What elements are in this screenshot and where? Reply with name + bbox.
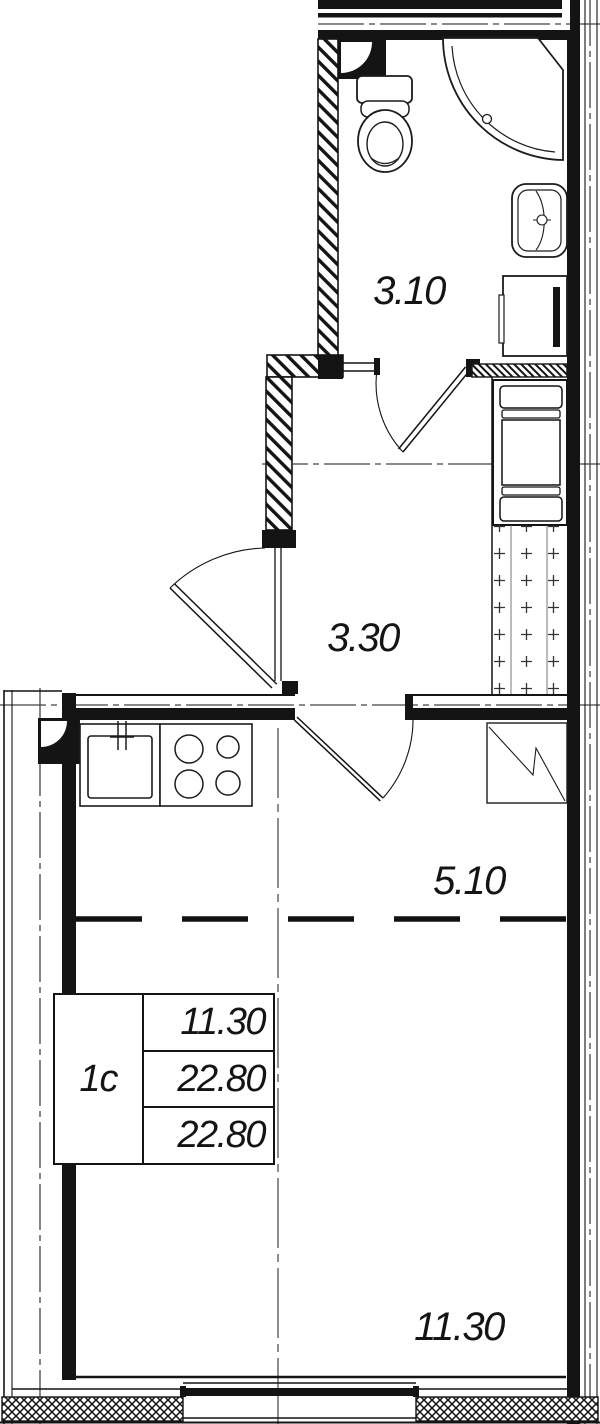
room-area-hallway: 3.30 (327, 618, 399, 658)
vent-shaft-icon-bathroom (338, 39, 386, 79)
fridge-icon (487, 723, 567, 803)
kitchen-sink-icon (80, 721, 160, 806)
room-area-living: 11.30 (414, 1307, 504, 1347)
unit-living-area: 11.30 (144, 995, 273, 1052)
unit-areas: 11.30 22.80 22.80 (144, 995, 273, 1163)
wardrobe-icon (493, 380, 567, 525)
unit-full-area: 22.80 (144, 1108, 273, 1163)
unit-total-area: 22.80 (144, 1052, 273, 1109)
room-area-kitchen: 5.10 (433, 861, 505, 901)
floor-plan-drawing (0, 0, 600, 1424)
closet-area (493, 525, 567, 694)
toilet-icon (357, 76, 412, 172)
washer-icon (499, 276, 567, 356)
stove-icon (160, 724, 252, 806)
room-area-bathroom: 3.10 (373, 271, 445, 311)
vent-shaft-icon-kitchen (38, 718, 80, 764)
sink-icon-bathroom (512, 184, 567, 257)
unit-type-label: 1с (55, 995, 144, 1163)
unit-info-table: 1с 11.30 22.80 22.80 (53, 993, 275, 1165)
floor-plan-canvas: 3.10 3.30 5.10 11.30 1с 11.30 22.80 22.8… (0, 0, 600, 1424)
